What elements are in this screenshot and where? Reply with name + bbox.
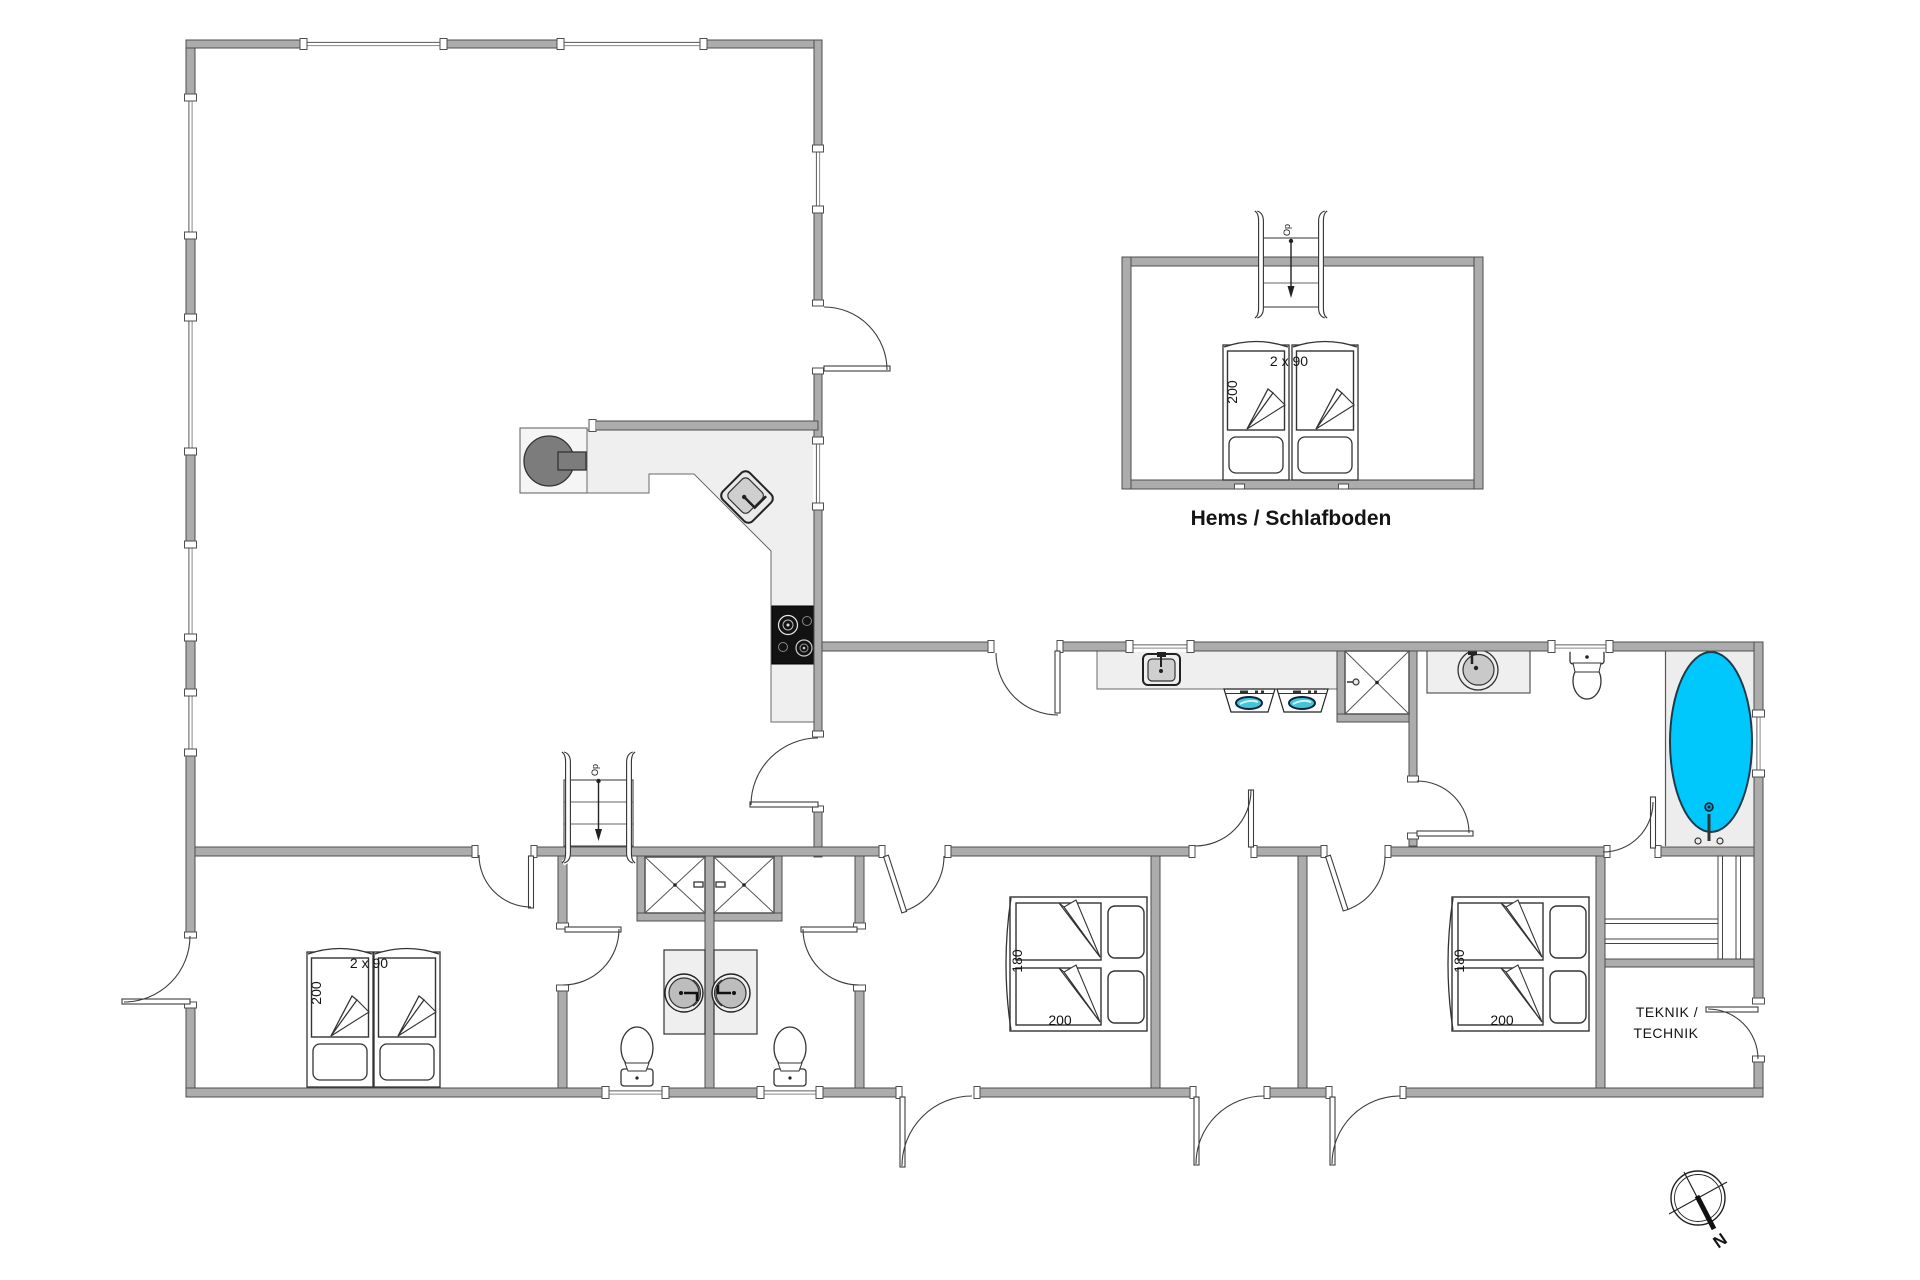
svg-text:180: 180: [1009, 949, 1025, 973]
svg-text:200: 200: [1048, 1012, 1072, 1028]
svg-text:180: 180: [1451, 949, 1467, 973]
svg-text:200: 200: [1490, 1012, 1514, 1028]
svg-text:TEKNIK /: TEKNIK /: [1636, 1004, 1698, 1020]
svg-text:2 x 90: 2 x 90: [350, 955, 388, 971]
svg-text:200: 200: [308, 981, 324, 1005]
svg-text:2 x 90: 2 x 90: [1270, 353, 1308, 369]
svg-text:Hems / Schlafboden: Hems / Schlafboden: [1191, 507, 1392, 530]
svg-text:200: 200: [1224, 380, 1240, 404]
svg-text:Op: Op: [1282, 224, 1292, 236]
svg-text:TECHNIK: TECHNIK: [1634, 1025, 1699, 1041]
svg-text:Op: Op: [590, 764, 600, 776]
